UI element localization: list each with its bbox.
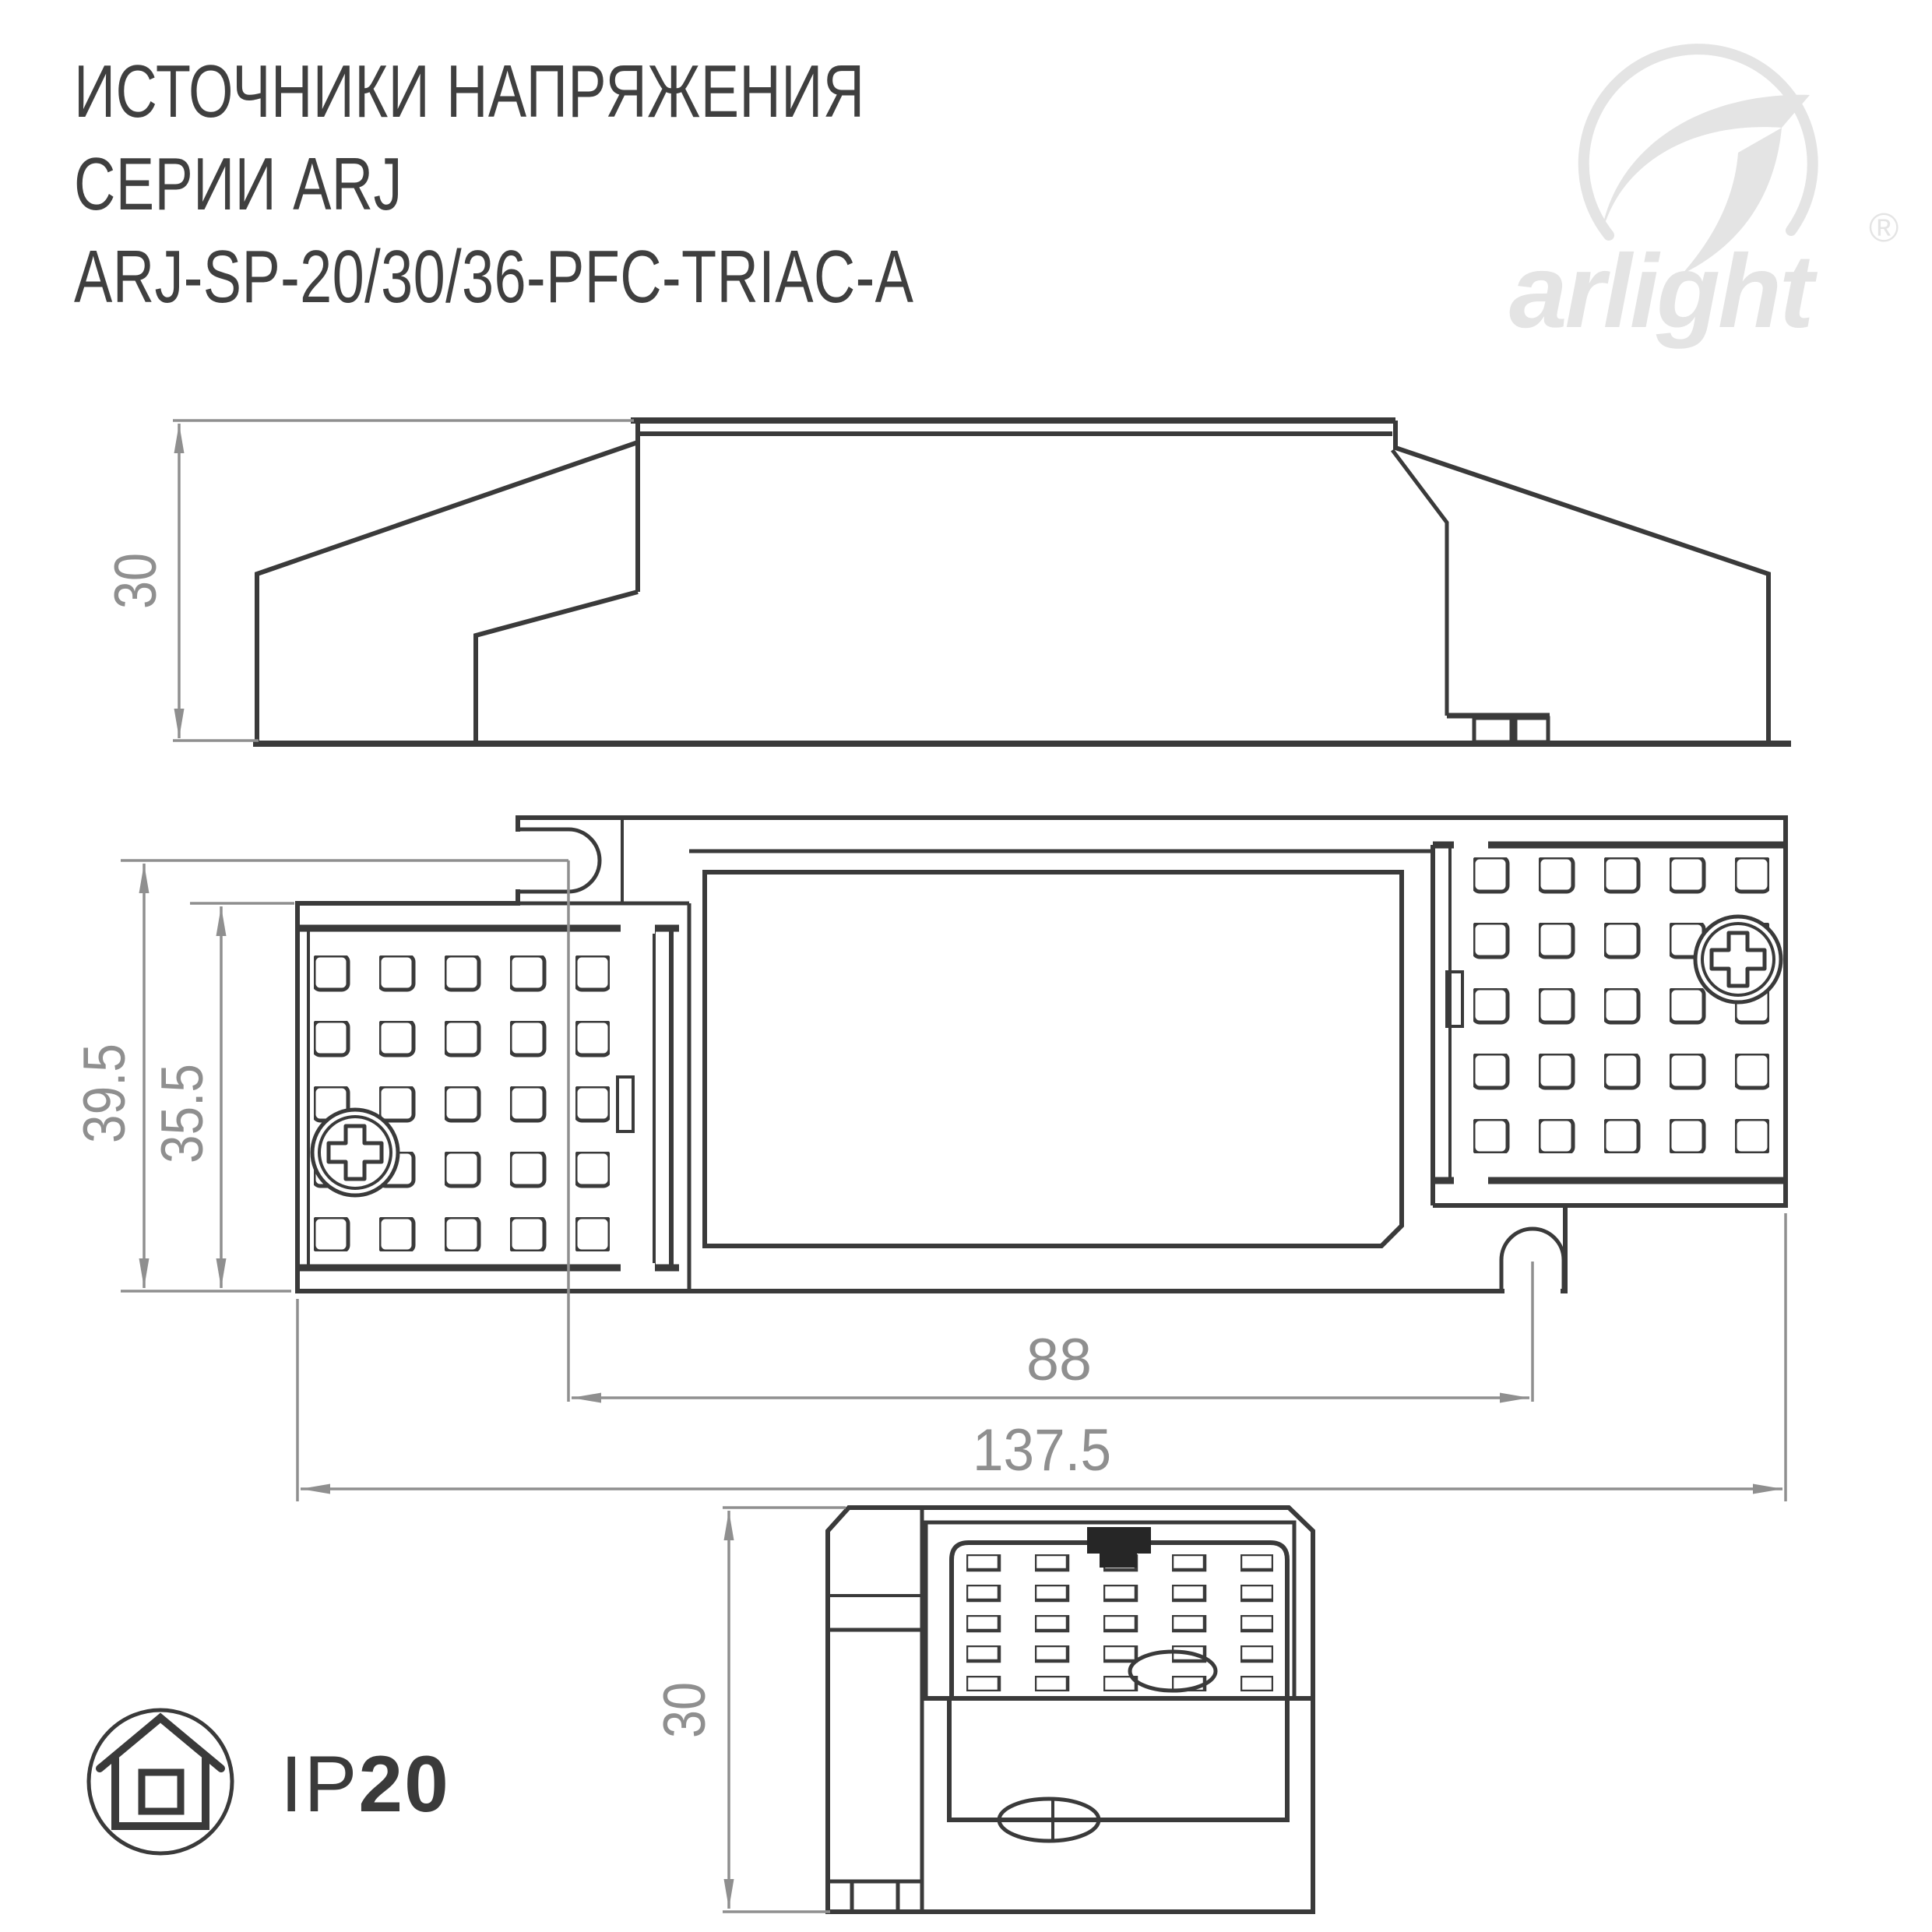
dim-label-end-height: 30 (652, 1682, 718, 1738)
vent-grid (314, 955, 610, 1251)
clip-black (1100, 1554, 1137, 1568)
side-foot (1515, 718, 1548, 742)
screw-icon (1695, 917, 1781, 1002)
side-view: 30 (103, 421, 1791, 744)
latch-notch (1454, 840, 1488, 850)
dim-slot-spacing-88: 88 (568, 860, 1533, 1402)
dim-label-overall-length: 137.5 (973, 1417, 1111, 1483)
vent-grid (966, 1554, 1273, 1691)
side-left-inner-profile (476, 592, 638, 741)
screw-icon (312, 1110, 398, 1195)
dim-label-cover-width: 35.5 (150, 1064, 216, 1163)
clip-black (1087, 1527, 1151, 1554)
top-view: 39.5 35.5 88 137.5 (72, 818, 1786, 1501)
logo-wordmark: arlight (1509, 234, 1818, 350)
latch-notch (1454, 1176, 1488, 1186)
side-left-outer-profile (257, 442, 638, 741)
end-bottom-panel (949, 1698, 1287, 1820)
ip-rating-label: IP20 (280, 1740, 450, 1828)
latch-notch (621, 924, 655, 934)
dim-cover-width-35-5: 35.5 (150, 903, 294, 1288)
side-right-outer-profile (1395, 421, 1768, 741)
logo-swoosh-icon (1604, 95, 1810, 221)
side-foot (1474, 718, 1511, 742)
arlight-logo: arlight ® (1509, 49, 1899, 350)
technical-drawing: arlight ® 30 (0, 0, 1932, 1932)
end-view: 30 (652, 1508, 1313, 1912)
datasheet-page: ИСТОЧНИКИ НАПРЯЖЕНИЯ СЕРИИ ARJ ARJ-SP-20… (0, 0, 1932, 1932)
left-vent-cover (297, 924, 679, 1273)
dim-label-side-height: 30 (103, 553, 169, 609)
dim-side-height-30: 30 (103, 421, 634, 741)
badge-circle (89, 1710, 232, 1853)
vent-grid (1473, 857, 1769, 1153)
ip-rating-badge: IP20 (89, 1710, 450, 1853)
side-right-inner-profile (1392, 450, 1447, 716)
dim-label-slot-spacing: 88 (1026, 1327, 1092, 1393)
dim-label-body-width: 39.5 (72, 1043, 138, 1143)
dim-end-height-30: 30 (652, 1508, 846, 1912)
ip-prefix: IP (280, 1740, 358, 1828)
latch-notch (621, 1263, 655, 1273)
right-vent-cover (1433, 840, 1786, 1205)
registered-mark: ® (1869, 206, 1899, 251)
ip-value: 20 (358, 1740, 449, 1828)
central-lid (705, 872, 1402, 1246)
house-icon (100, 1718, 221, 1826)
side-slot (618, 1077, 633, 1131)
